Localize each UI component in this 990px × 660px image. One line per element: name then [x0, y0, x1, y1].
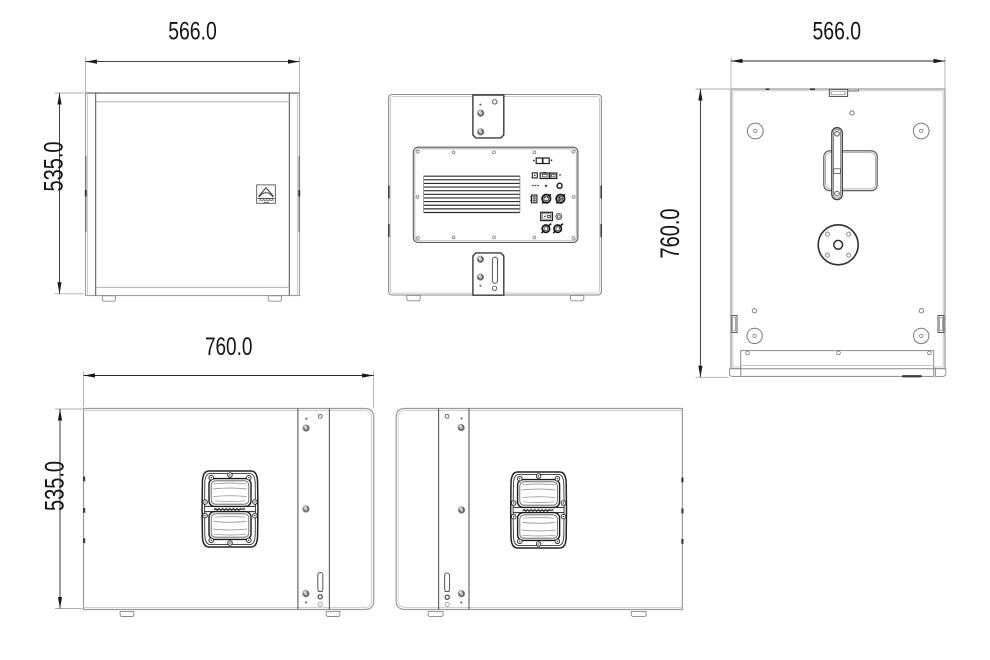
svg-text:535.0: 535.0	[40, 461, 70, 511]
svg-text:566.0: 566.0	[168, 17, 217, 45]
svg-text:566.0: 566.0	[813, 17, 862, 45]
svg-text:535.0: 535.0	[39, 142, 69, 192]
svg-text:760.0: 760.0	[205, 333, 253, 361]
svg-text:760.0: 760.0	[655, 209, 685, 259]
